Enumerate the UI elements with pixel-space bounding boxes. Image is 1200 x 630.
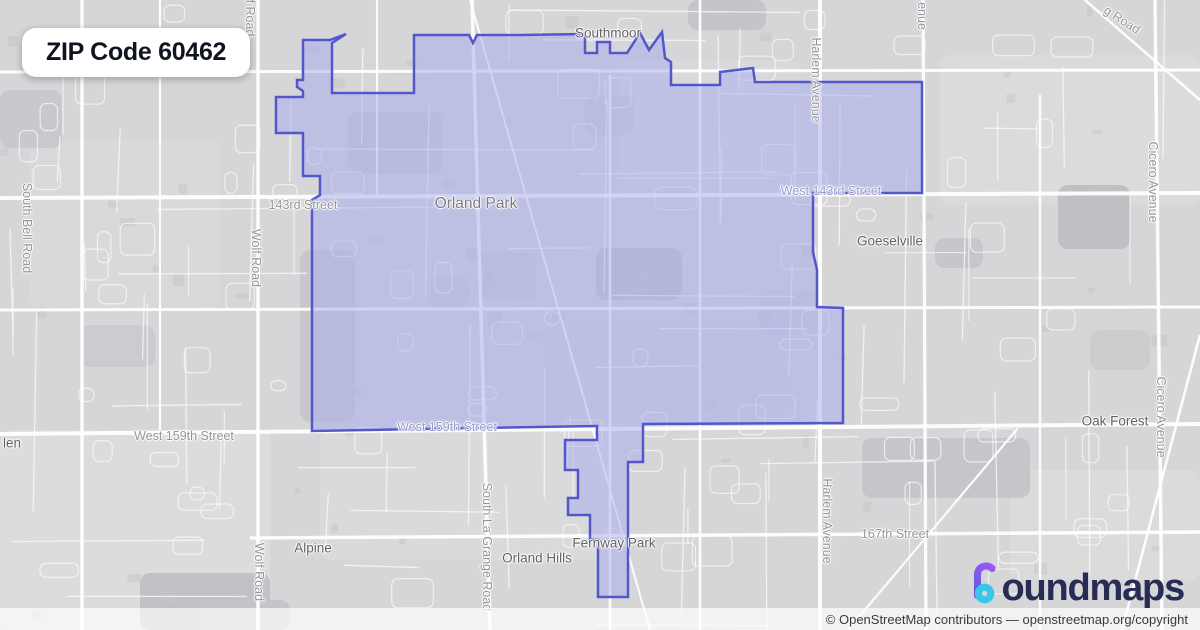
osm-attribution-text[interactable]: © OpenStreetMap contributors — openstree… [826, 612, 1200, 627]
boundmaps-wordmark: oundmaps [1001, 572, 1184, 604]
map-canvas[interactable] [0, 0, 1200, 630]
attribution-bar: © OpenStreetMap contributors — openstree… [0, 608, 1200, 630]
boundmaps-logo: oundmaps [970, 562, 1184, 604]
map-screenshot: SouthmoorHarlem Avenueenueg Roadf Road14… [0, 0, 1200, 630]
zip-title-text: ZIP Code 60462 [46, 38, 226, 66]
zip-title-card: ZIP Code 60462 [22, 28, 250, 77]
boundmaps-b-icon [970, 562, 1000, 604]
